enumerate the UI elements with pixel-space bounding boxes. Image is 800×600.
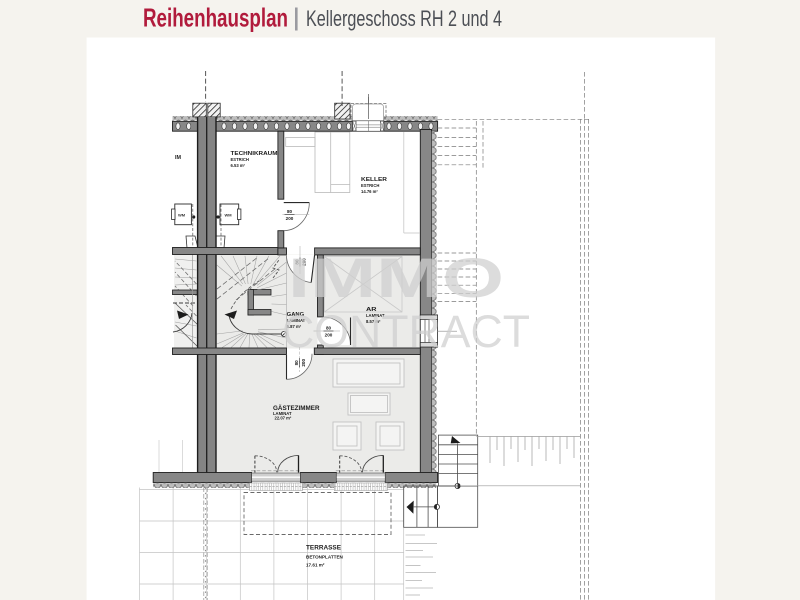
- svg-text:IMMO: IMMO: [288, 246, 504, 309]
- svg-text:BETONPLATTEN: BETONPLATTEN: [306, 555, 344, 560]
- svg-text:200: 200: [301, 359, 306, 367]
- svg-text:Reihenhausplan: Reihenhausplan: [143, 3, 288, 33]
- svg-text:Kellergeschoss RH 2 und 4: Kellergeschoss RH 2 und 4: [306, 6, 502, 31]
- svg-text:WM: WM: [225, 213, 233, 218]
- svg-text:17.61 m²: 17.61 m²: [306, 563, 325, 568]
- svg-text:14.76 m²: 14.76 m²: [361, 189, 378, 194]
- svg-text:80: 80: [294, 360, 299, 366]
- svg-text:ESTRICH: ESTRICH: [361, 183, 379, 188]
- svg-text:80: 80: [287, 209, 293, 214]
- svg-text:22.07 m²: 22.07 m²: [275, 416, 292, 421]
- svg-text:200: 200: [286, 216, 294, 221]
- svg-text:CONTRACT: CONTRACT: [282, 306, 530, 357]
- svg-text:WM: WM: [178, 213, 186, 218]
- svg-text:IM: IM: [175, 155, 181, 161]
- svg-text:6.53 m²: 6.53 m²: [231, 163, 246, 168]
- svg-text:ESTRICH: ESTRICH: [231, 157, 249, 162]
- svg-text:TERRASSE: TERRASSE: [306, 545, 341, 552]
- svg-text:TECHNIKRAUM: TECHNIKRAUM: [231, 151, 279, 157]
